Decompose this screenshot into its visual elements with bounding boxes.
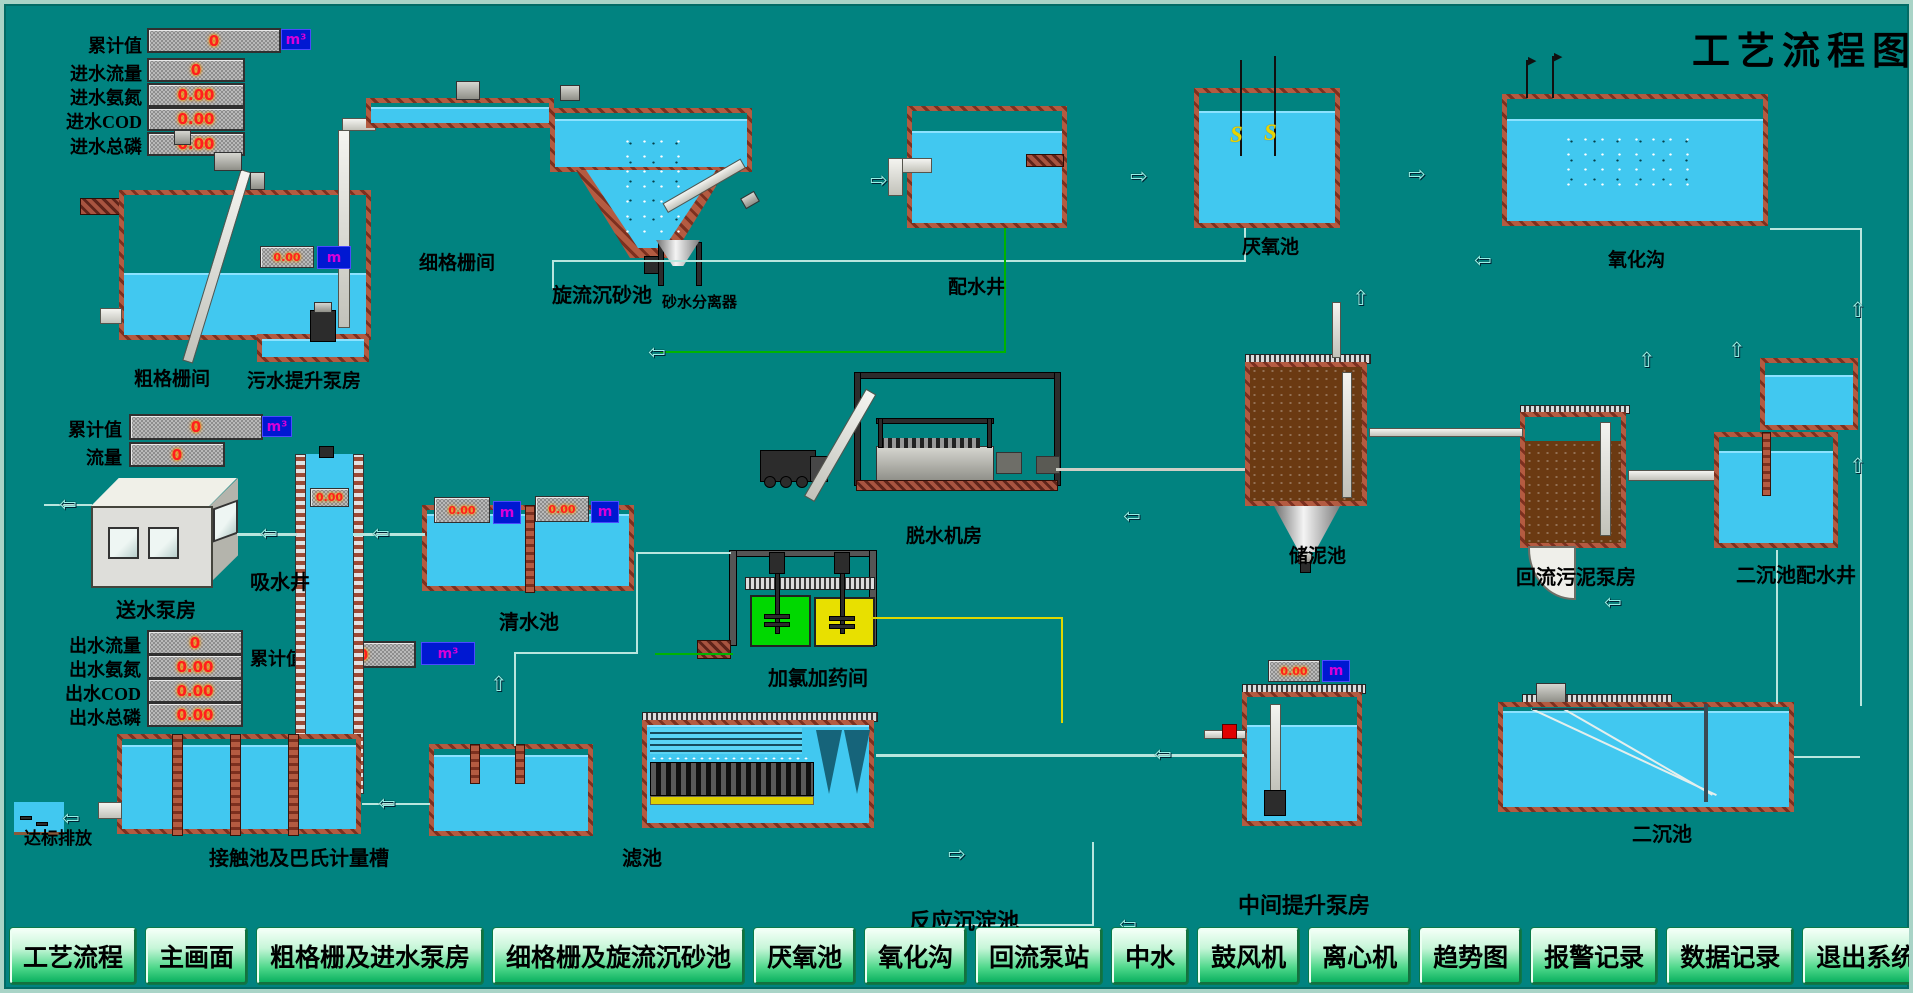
flow-arrow-left (1474, 250, 1492, 271)
nav-trend-chart[interactable]: 趋势图 (1420, 928, 1521, 984)
green-line (655, 653, 733, 655)
suction-well-level-display: 0.00 (310, 488, 349, 507)
yellow-trough (650, 796, 814, 805)
flow-arrow-up (1849, 300, 1867, 321)
water (1765, 375, 1853, 425)
fine-rake (250, 172, 265, 190)
mixer-motor (834, 552, 850, 574)
pump-cap (314, 302, 332, 313)
label-return-sludge-pump-station: 回流污泥泵房 (1516, 561, 1636, 590)
press-leg (878, 418, 883, 448)
nav-process-flow[interactable]: 工艺流程 (10, 928, 136, 984)
label-oxidation-ditch: 氧化沟 (1608, 245, 1665, 272)
inlet-nh3-label: 进水氨氮 (34, 84, 142, 110)
belt-press (876, 446, 994, 482)
return-outlet-pipe (1628, 470, 1718, 481)
water (912, 131, 1062, 223)
press-motor (996, 452, 1022, 474)
sludge-transfer-pipe (1369, 428, 1523, 437)
inlet-flow-label: 进水流量 (34, 60, 142, 86)
line (1794, 756, 1860, 758)
inlet-tp-label: 进水总磷 (34, 133, 142, 159)
nav-oxidation-ditch[interactable]: 氧化沟 (865, 928, 966, 984)
water (371, 107, 549, 123)
flow-arrow-left (260, 523, 278, 544)
flow-arrow-up (1728, 340, 1746, 361)
outlet-tp-field: 0.00 (147, 702, 243, 727)
scraper-motor (1536, 683, 1566, 703)
window (148, 527, 179, 559)
scada-process-flow-screen: 工艺流程图 累计值 0 m³ 进水流量 0 进水氨氮 0.00 进水COD 0.… (0, 0, 1913, 993)
flow-arrow-left (378, 793, 396, 814)
outlet-flow-label: 出水流量 (39, 632, 141, 658)
outlet-cod-field: 0.00 (147, 678, 243, 703)
flow-arrow-left (1154, 744, 1172, 765)
nav-return-pump-station[interactable]: 回流泵站 (976, 928, 1102, 984)
mixer-blade (829, 624, 855, 629)
clearwell-level-2-display: 0.00 (535, 496, 589, 522)
line (876, 754, 1244, 757)
green-line (660, 351, 1006, 353)
conveyor-head (740, 191, 760, 209)
water (1719, 451, 1833, 543)
label-sewage-lift-station: 污水提升泵房 (247, 366, 361, 393)
platform (856, 480, 1058, 491)
separator-leg (696, 242, 702, 286)
flow-arrow-left (1123, 506, 1141, 527)
supply-flow-label: 流量 (44, 444, 122, 470)
supply-total-label: 累计值 (44, 416, 122, 442)
label-vortex-grit-chamber: 旋流沉砂池 (552, 279, 652, 308)
clearwell-level-1-display: 0.00 (434, 497, 490, 523)
fine-screen-channel (366, 98, 554, 128)
supply-flow-field: 0 (129, 442, 225, 467)
sludge-feed-line (1056, 468, 1246, 471)
press-leg (987, 418, 992, 448)
flow-arrow-right (948, 844, 966, 865)
outlet-nh3-label: 出水氨氮 (39, 656, 141, 682)
sludge-tank-pipe (1342, 372, 1352, 498)
sludge-tank-top-pipe (1332, 302, 1341, 358)
clearwell-level-1-unit: m (493, 501, 521, 524)
red-valve (1222, 724, 1237, 739)
supply-total-unit-badge: m³ (262, 416, 292, 437)
outlet-flow-field: 0 (147, 630, 243, 655)
mixer-icon (1264, 120, 1277, 146)
line (514, 652, 638, 654)
label-intermediate-lift-station: 中间提升泵房 (1238, 888, 1370, 920)
label-anaerobic-tank: 厌氧池 (1242, 232, 1299, 259)
truck-wheel (780, 476, 792, 488)
flow-arrow-left (1604, 592, 1622, 613)
secondary-dist-upper-tank (1760, 358, 1858, 430)
filter-tank (429, 744, 593, 836)
inlet-flow-field: 0 (147, 58, 245, 82)
label-filter-tank: 滤池 (622, 842, 662, 871)
submersible-pump (310, 310, 336, 342)
label-chlorine-dosing-room: 加氯加药间 (768, 662, 868, 691)
grit-bubbles (619, 134, 683, 234)
lift-pump-level-display: 0.00 (260, 246, 314, 268)
label-suction-well: 吸水井 (250, 566, 310, 595)
label-standard-discharge: 达标排放 (24, 824, 92, 849)
window (108, 527, 139, 559)
inlet-cod-label: 进水COD (34, 108, 142, 134)
nav-centrifuge[interactable]: 离心机 (1309, 928, 1410, 984)
flag-icon (1528, 54, 1536, 67)
nav-alarm-record[interactable]: 报警记录 (1531, 928, 1657, 984)
riser-pipe (338, 130, 350, 328)
clearwell-level-2-unit: m (591, 501, 619, 523)
well-outlet-elbow (888, 158, 903, 196)
inlet-total-label: 累计值 (34, 32, 142, 58)
feed-pump (1036, 456, 1060, 474)
nav-main-screen[interactable]: 主画面 (146, 928, 247, 984)
yellow-line (871, 617, 1063, 619)
anaerobic-tank (1194, 88, 1340, 228)
well-weir (1026, 154, 1064, 167)
flow-arrow-left (372, 523, 390, 544)
discharge-pipe (98, 802, 122, 819)
line (1092, 842, 1094, 926)
flow-arrow-left (648, 342, 666, 363)
mixer-blade (764, 614, 790, 619)
water (1503, 711, 1789, 807)
outlet-nh3-field: 0.00 (147, 654, 243, 679)
line (1770, 228, 1862, 230)
truck-wheel (764, 476, 776, 488)
flow-arrow-up (1352, 288, 1370, 309)
nav-blower[interactable]: 鼓风机 (1198, 928, 1299, 984)
outlet-cod-label: 出水COD (39, 680, 141, 706)
dist-well-divider (1762, 432, 1771, 496)
return-pump-pipe (1600, 422, 1611, 536)
contact-divider (230, 734, 241, 836)
yellow-line (1061, 617, 1063, 723)
lamella-plates (650, 728, 802, 754)
mid-lift-level-unit: m (1322, 660, 1350, 682)
nav-reclaimed-water[interactable]: 中水 (1112, 928, 1188, 984)
mid-lift-tank (1242, 692, 1362, 826)
label-grit-water-separator: 砂水分离器 (662, 291, 737, 312)
inlet-nh3-field: 0.00 (147, 83, 245, 107)
mid-lift-pump (1264, 790, 1286, 816)
mid-lift-level-display: 0.00 (1268, 660, 1320, 682)
nav-data-record[interactable]: 数据记录 (1667, 928, 1793, 984)
screen-motor (214, 152, 242, 171)
flow-arrow-right (1130, 166, 1148, 187)
level-sensor (174, 130, 191, 145)
filter-divider (515, 744, 525, 784)
dosing-rail (745, 577, 875, 590)
inlet-total-unit-badge: m³ (281, 29, 311, 50)
filter-media-grid (650, 762, 814, 796)
nav-fine-screen-vortex-grit[interactable]: 细格栅及旋流沉砂池 (493, 928, 744, 984)
label-sludge-storage-tank: 储泥池 (1289, 541, 1346, 568)
inlet-total-field: 0 (147, 28, 281, 53)
label-secondary-distribution-well: 二沉池配水井 (1736, 559, 1856, 588)
supply-total-field: 0 (129, 414, 263, 440)
line (636, 552, 731, 554)
secondary-dist-lower-tank (1714, 432, 1838, 548)
label-clear-water-tank: 清水池 (499, 606, 559, 635)
label-contact-tank: 接触池及巴氏计量槽 (209, 842, 389, 871)
channel-device (560, 85, 580, 101)
lift-pump-level-unit: m (317, 246, 351, 269)
aeration-bubbles (1560, 132, 1692, 194)
dosing-frame-beam (729, 550, 877, 557)
ground-patch (80, 198, 122, 215)
flow-arrow-up (1849, 456, 1867, 477)
flow-arrow-left (59, 494, 77, 515)
water (434, 755, 588, 831)
return-line (552, 260, 1246, 262)
gantry-beam (854, 372, 1061, 379)
label-fine-screen-room: 细格栅间 (419, 248, 495, 275)
collector-dots (650, 756, 812, 761)
press-frame (876, 418, 994, 424)
flow-arrow-right (1408, 164, 1426, 185)
truck-wheel (796, 476, 808, 488)
mixer-icon (1230, 122, 1243, 148)
scraper-post (1704, 704, 1708, 802)
line (362, 803, 430, 805)
outlet-tp-label: 出水总磷 (39, 704, 141, 730)
wave-dash (20, 816, 32, 820)
label-distribution-well: 配水井 (948, 272, 1005, 299)
nav-exit-system[interactable]: 退出系统 (1803, 928, 1913, 984)
mid-lift-pipe (1270, 704, 1281, 792)
bottom-nav-bar: 工艺流程 主画面 粗格栅及进水泵房 细格栅及旋流沉砂池 厌氧池 氧化沟 回流泵站… (10, 928, 1903, 984)
line (514, 652, 516, 746)
flow-arrow-up (490, 674, 508, 695)
label-water-supply-pump-station: 送水泵房 (116, 594, 196, 623)
inlet-cod-field: 0.00 (147, 107, 245, 131)
ground-patch (697, 640, 731, 659)
line (636, 552, 638, 654)
clear-water-divider (525, 505, 535, 593)
outlet-total-unit-badge: m³ (421, 642, 475, 665)
filter-divider (470, 744, 480, 784)
inlet-pipe-stub (100, 308, 122, 324)
nav-coarse-screen-inlet-pump[interactable]: 粗格栅及进水泵房 (257, 928, 483, 984)
flow-arrow-up (1638, 350, 1656, 371)
scraper-beam (1532, 708, 1708, 710)
contact-divider (172, 734, 183, 836)
nav-anaerobic-tank[interactable]: 厌氧池 (754, 928, 855, 984)
mixer-blade (764, 622, 790, 627)
fine-screen-device (456, 81, 480, 100)
mixer-motor (769, 552, 785, 574)
label-coarse-screen-room: 粗格栅间 (134, 364, 210, 391)
flow-arrow-right (870, 170, 888, 191)
belt-press-rollers (880, 438, 980, 448)
dosing-tank-green (750, 595, 811, 647)
label-dewatering-room: 脱水机房 (906, 521, 982, 548)
contact-divider (288, 734, 299, 836)
page-title: 工艺流程图 (1692, 20, 1913, 75)
label-secondary-clarifier: 二沉池 (1632, 818, 1692, 847)
well-top-fitting (319, 446, 334, 458)
mixer-blade (829, 616, 855, 621)
dosing-frame-post (729, 550, 737, 646)
flag-icon (1554, 50, 1562, 63)
